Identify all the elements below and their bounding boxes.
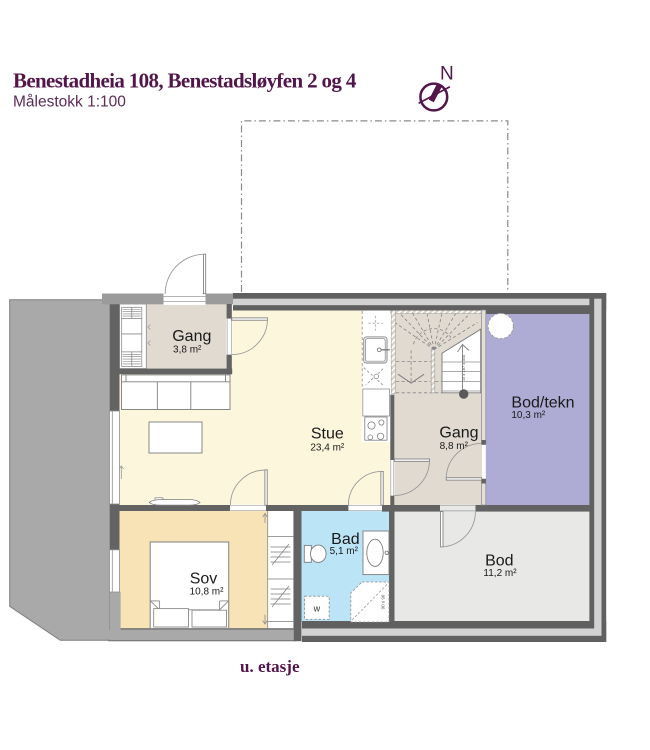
svg-text:Gang: Gang [439, 424, 478, 441]
svg-text:w: w [313, 604, 321, 614]
svg-text:5,1 m²: 5,1 m² [330, 546, 359, 557]
svg-text:3,8 m²: 3,8 m² [173, 344, 202, 355]
svg-text:u. etasje: u. etasje [240, 657, 300, 676]
svg-text:90 x 90: 90 x 90 [381, 594, 386, 609]
svg-text:15 x 187 x 300: 15 x 187 x 300 [461, 354, 466, 381]
svg-text:11,2 m²: 11,2 m² [483, 568, 517, 579]
svg-text:10,3 m²: 10,3 m² [511, 410, 546, 421]
svg-text:Bod/tekn: Bod/tekn [511, 394, 574, 411]
svg-text:Målestokk 1:100: Målestokk 1:100 [13, 94, 126, 111]
svg-text:Gang: Gang [172, 328, 211, 345]
svg-text:8,8 m²: 8,8 m² [440, 441, 469, 452]
svg-text:Benestadheia 108, Benestadsløy: Benestadheia 108, Benestadsløyfen 2 og 4 [13, 69, 357, 93]
svg-text:10,8 m²: 10,8 m² [190, 586, 225, 597]
svg-text:23,4 m²: 23,4 m² [310, 443, 345, 454]
svg-text:Bod: Bod [485, 552, 513, 569]
svg-text:N: N [440, 64, 454, 85]
svg-text:Stue: Stue [311, 426, 344, 443]
svg-text:Sov: Sov [190, 571, 218, 588]
